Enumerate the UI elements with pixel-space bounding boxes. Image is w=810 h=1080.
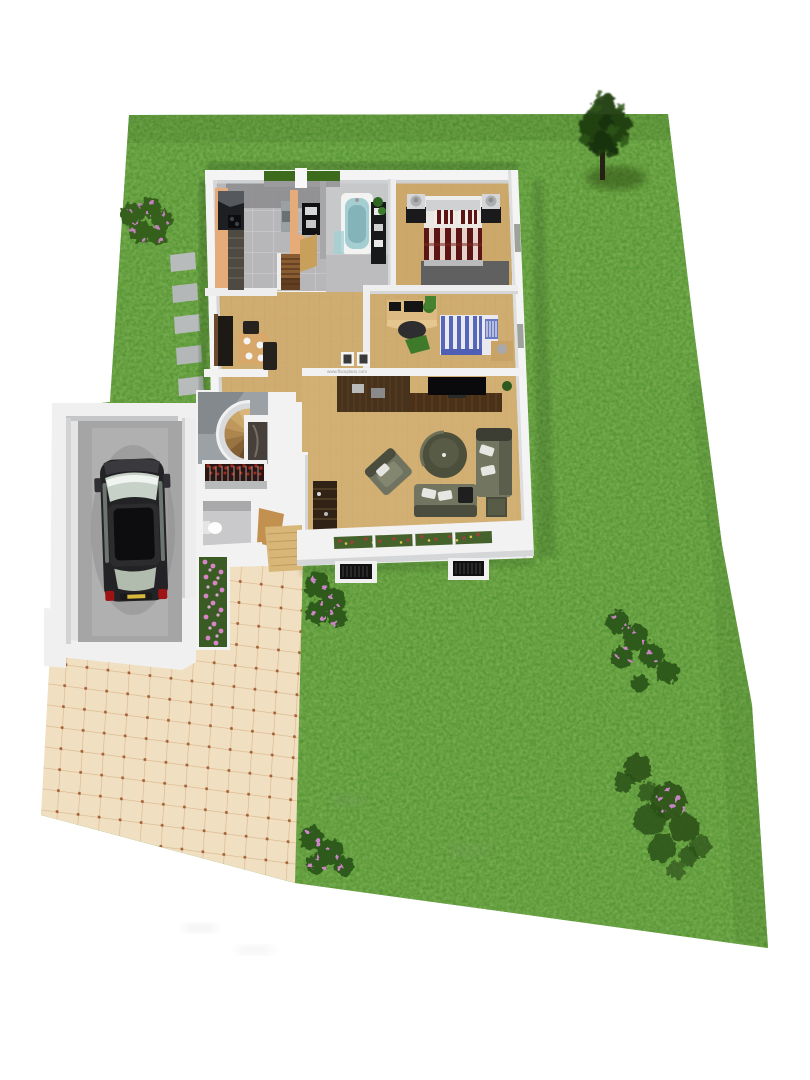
svg-text:www.floorplans.com: www.floorplans.com [327, 369, 367, 374]
